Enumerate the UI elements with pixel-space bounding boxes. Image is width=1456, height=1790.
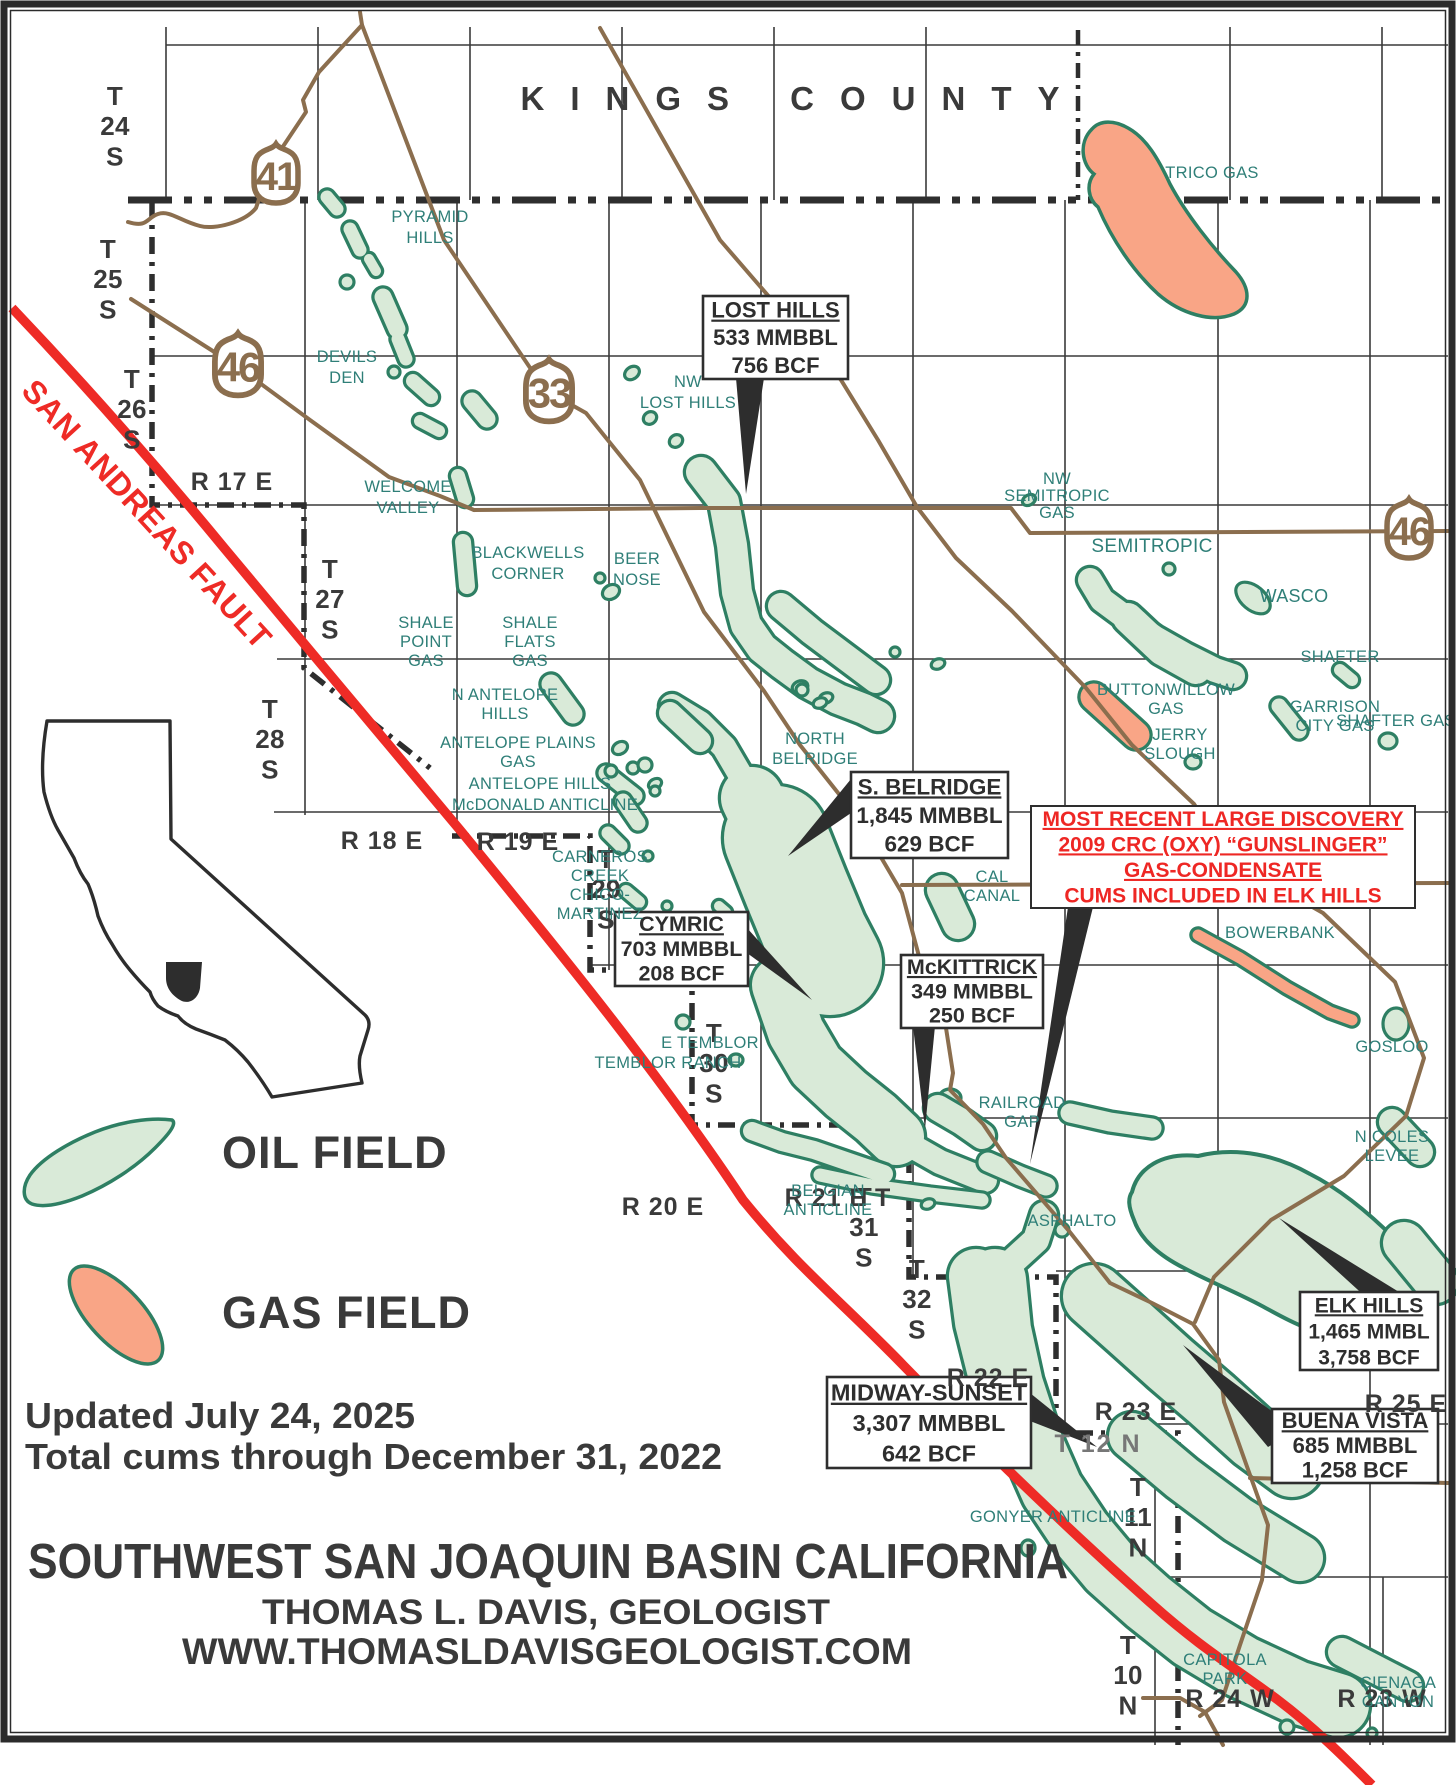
svg-text:SHALE: SHALE [502,614,558,632]
svg-text:GAS: GAS [512,652,548,670]
svg-text:ANTICLINE: ANTICLINE [784,1201,873,1219]
svg-text:R 25 E: R 25 E [1365,1390,1447,1418]
svg-text:T: T [1120,1630,1136,1660]
svg-text:SLOUGH: SLOUGH [1144,745,1215,763]
svg-text:MOST RECENT LARGE DISCOVERY: MOST RECENT LARGE DISCOVERY [1043,808,1404,831]
svg-text:1,845 MMBBL: 1,845 MMBBL [856,803,1003,828]
svg-text:LOST HILLS: LOST HILLS [711,298,839,323]
svg-text:CORNER: CORNER [491,565,564,583]
svg-text:GAS: GAS [1039,504,1075,522]
svg-text:CYMRIC: CYMRIC [639,912,724,936]
svg-text:LEVEE: LEVEE [1365,1147,1420,1165]
svg-text:GOSLOO: GOSLOO [1355,1038,1428,1056]
svg-text:SHAFTER: SHAFTER [1300,648,1379,666]
svg-text:NOSE: NOSE [613,571,661,589]
svg-text:S: S [261,754,279,784]
svg-text:CIENAGA: CIENAGA [1360,1674,1436,1692]
svg-text:THOMAS L. DAVIS, GEOLOGIST: THOMAS L. DAVIS, GEOLOGIST [262,1593,830,1632]
svg-text:LOST HILLS: LOST HILLS [640,394,736,412]
svg-text:SOUTHWEST SAN JOAQUIN BASIN CA: SOUTHWEST SAN JOAQUIN BASIN CALIFORNIA [28,1535,1068,1589]
svg-text:CANAL: CANAL [964,887,1021,905]
svg-text:32: 32 [902,1284,932,1314]
svg-text:R 23 E: R 23 E [1095,1398,1177,1426]
svg-text:28: 28 [255,724,285,754]
svg-text:PARK: PARK [1203,1670,1248,1688]
svg-text:HILLS: HILLS [406,229,453,247]
svg-text:R 17 E: R 17 E [191,468,273,496]
svg-text:ELK HILLS: ELK HILLS [1315,1294,1424,1317]
svg-text:533 MMBBL: 533 MMBBL [713,325,838,350]
svg-text:S: S [99,294,117,324]
svg-text:GAS: GAS [500,753,536,771]
svg-text:685 MMBBL: 685 MMBBL [1293,1433,1418,1458]
svg-text:GAS-CONDENSATE: GAS-CONDENSATE [1124,859,1322,882]
svg-text:N: N [1118,1690,1137,1720]
svg-text:OIL FIELD: OIL FIELD [222,1127,448,1178]
svg-text:SEMITROPIC: SEMITROPIC [1091,536,1212,557]
svg-text:24: 24 [100,111,130,141]
svg-text:GAP: GAP [1004,1113,1040,1131]
svg-text:NW: NW [1043,470,1071,488]
svg-text:3,758 BCF: 3,758 BCF [1318,1346,1420,1369]
svg-text:GONYER ANTICLINE: GONYER ANTICLINE [970,1508,1136,1526]
svg-text:T: T [1130,1472,1146,1502]
svg-text:T: T [909,1254,925,1284]
svg-text:629 BCF: 629 BCF [884,832,974,857]
svg-text:RAILROAD: RAILROAD [979,1094,1066,1112]
svg-text:25: 25 [93,264,123,294]
svg-text:E TEMBLOR: E TEMBLOR [661,1034,759,1052]
svg-text:349 MMBBL: 349 MMBBL [911,979,1033,1003]
svg-text:VALLEY: VALLEY [377,499,440,517]
svg-text:N ANTELOPE: N ANTELOPE [452,686,559,704]
svg-text:SHAFTER GAS: SHAFTER GAS [1336,712,1456,730]
svg-text:MARTINEZ: MARTINEZ [557,905,643,923]
svg-text:208 BCF: 208 BCF [638,962,724,986]
svg-text:T: T [322,554,338,584]
svg-text:CHICO-: CHICO- [570,886,630,904]
svg-text:McDONALD ANTICLINE: McDONALD ANTICLINE [452,796,638,814]
svg-text:GAS: GAS [408,652,444,670]
svg-text:Updated July 24, 2025: Updated July 24, 2025 [25,1395,415,1436]
svg-text:756 BCF: 756 BCF [731,353,819,378]
svg-text:S: S [321,614,339,644]
svg-text:S: S [705,1078,723,1108]
svg-text:ANTELOPE PLAINS: ANTELOPE PLAINS [440,734,596,752]
svg-text:R 22 E: R 22 E [947,1364,1029,1392]
svg-text:T: T [124,364,140,394]
svg-text:33: 33 [528,370,571,417]
svg-text:BUTTONWILLOW: BUTTONWILLOW [1097,681,1235,699]
svg-text:CAL: CAL [976,868,1009,886]
svg-text:GAS FIELD: GAS FIELD [222,1287,471,1338]
svg-text:CUMS INCLUDED IN ELK HILLS: CUMS INCLUDED IN ELK HILLS [1064,884,1381,907]
svg-text:KINGS COUNTY: KINGS COUNTY [520,80,1085,117]
svg-text:1,465 MMBL: 1,465 MMBL [1308,1320,1430,1343]
svg-text:R 20 E: R 20 E [622,1193,704,1221]
svg-text:NORTH: NORTH [785,730,845,748]
svg-text:3,307 MMBBL: 3,307 MMBBL [853,1410,1006,1436]
svg-text:SEMITROPIC: SEMITROPIC [1004,487,1110,505]
svg-text:BELGIAN: BELGIAN [791,1182,865,1200]
svg-text:SHALE: SHALE [398,614,454,632]
svg-text:250 BCF: 250 BCF [929,1004,1015,1028]
svg-text:S: S [908,1314,926,1344]
svg-text:FLATS: FLATS [504,633,556,651]
svg-text:TEMBLOR RANCH: TEMBLOR RANCH [595,1054,742,1072]
svg-text:S: S [123,424,141,454]
svg-text:POINT: POINT [400,633,452,651]
svg-text:BLACKWELLS: BLACKWELLS [471,544,584,562]
svg-text:T 12 N: T 12 N [1054,1430,1141,1458]
svg-text:2009 CRC (OXY) “GUNSLINGER”: 2009 CRC (OXY) “GUNSLINGER” [1058,833,1387,856]
svg-text:R 19 E: R 19 E [477,828,559,856]
svg-text:1,258 BCF: 1,258 BCF [1302,1458,1408,1483]
svg-text:46: 46 [1389,510,1430,554]
svg-text:Total cums through December 31: Total cums through December 31, 2022 [25,1436,722,1477]
svg-text:N COLES: N COLES [1355,1128,1430,1146]
svg-text:N: N [1128,1532,1147,1562]
svg-text:ASPHALTO: ASPHALTO [1028,1212,1117,1230]
svg-text:CARNEROS: CARNEROS [552,848,648,866]
svg-text:46: 46 [217,344,260,391]
svg-text:642 BCF: 642 BCF [882,1440,976,1466]
svg-text:S: S [106,141,124,171]
svg-text:S: S [855,1242,873,1272]
svg-text:TRICO GAS: TRICO GAS [1165,164,1258,182]
svg-text:HILLS: HILLS [481,705,528,723]
svg-text:BOWERBANK: BOWERBANK [1225,924,1335,942]
svg-text:S. BELRIDGE: S. BELRIDGE [858,774,1002,799]
svg-text:McKITTRICK: McKITTRICK [907,955,1038,979]
svg-text:WASCO: WASCO [1260,586,1329,606]
svg-text:T: T [107,81,123,111]
svg-text:JERRY: JERRY [1152,726,1207,744]
svg-text:WWW.THOMASLDAVISGEOLOGIST.COM: WWW.THOMASLDAVISGEOLOGIST.COM [182,1631,912,1672]
svg-text:CREEK: CREEK [571,867,629,885]
svg-text:10: 10 [1113,1660,1143,1690]
svg-text:41: 41 [256,155,298,199]
svg-text:CAPITOLA: CAPITOLA [1183,1651,1267,1669]
svg-text:R 24 W: R 24 W [1185,1685,1274,1713]
svg-text:T: T [262,694,278,724]
svg-text:DEN: DEN [329,369,365,387]
svg-text:R 18 E: R 18 E [341,827,423,855]
svg-text:WELCOME: WELCOME [364,478,451,496]
svg-text:BELRIDGE: BELRIDGE [772,750,858,768]
svg-text:CANYON: CANYON [1362,1693,1434,1711]
svg-text:703 MMBBL: 703 MMBBL [621,937,743,961]
svg-text:BEER: BEER [614,550,660,568]
svg-text:GAS: GAS [1148,700,1184,718]
svg-text:ANTELOPE HILLS: ANTELOPE HILLS [469,775,612,793]
svg-text:T: T [100,234,116,264]
svg-text:PYRAMID: PYRAMID [391,208,468,226]
svg-text:26: 26 [117,394,147,424]
svg-text:NW: NW [674,373,702,391]
svg-text:DEVILS: DEVILS [317,348,378,366]
svg-text:27: 27 [315,584,345,614]
